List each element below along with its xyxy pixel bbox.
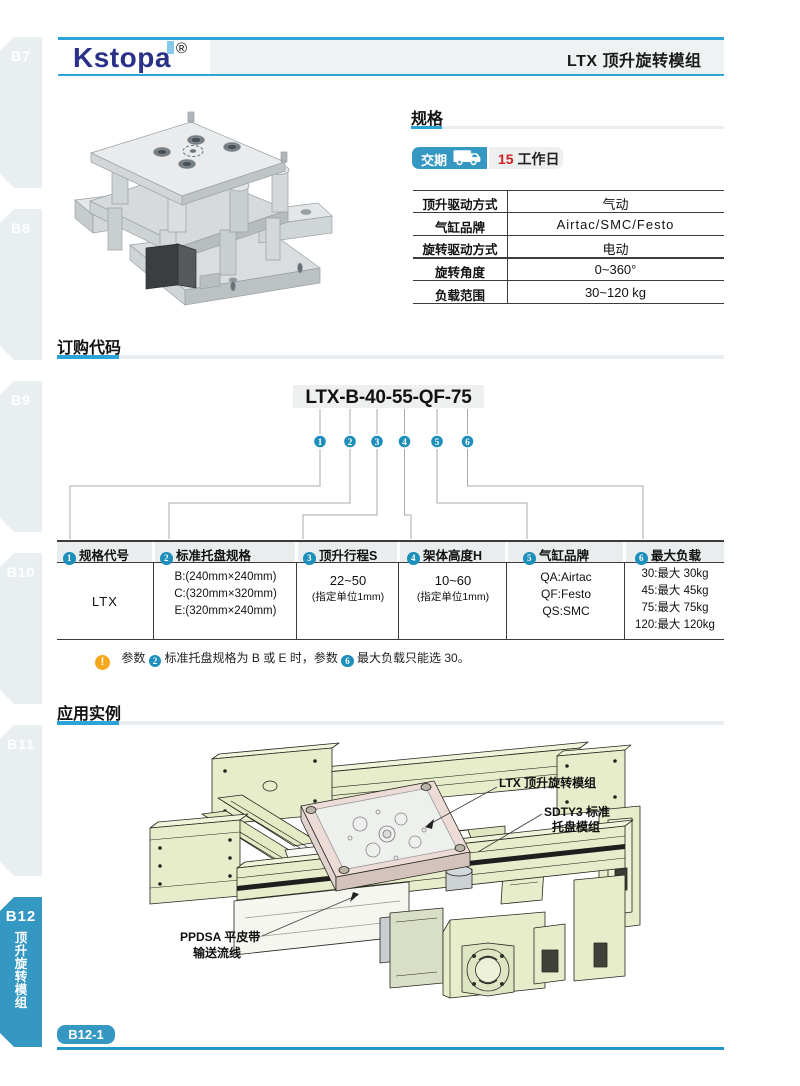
svg-text:输送流线: 输送流线 bbox=[193, 945, 241, 960]
svg-text:SDTY3 标准: SDTY3 标准 bbox=[544, 804, 610, 819]
svg-text:6: 6 bbox=[465, 438, 470, 448]
svg-text:3: 3 bbox=[375, 438, 380, 448]
svg-text:1: 1 bbox=[318, 438, 323, 448]
svg-text:托盘模组: 托盘模组 bbox=[552, 819, 600, 834]
svg-text:PPDSA 平皮带: PPDSA 平皮带 bbox=[180, 929, 260, 944]
svg-text:2: 2 bbox=[348, 438, 353, 448]
svg-text:5: 5 bbox=[435, 438, 440, 448]
svg-text:LTX 顶升旋转模组: LTX 顶升旋转模组 bbox=[499, 775, 596, 790]
svg-text:4: 4 bbox=[402, 438, 407, 448]
